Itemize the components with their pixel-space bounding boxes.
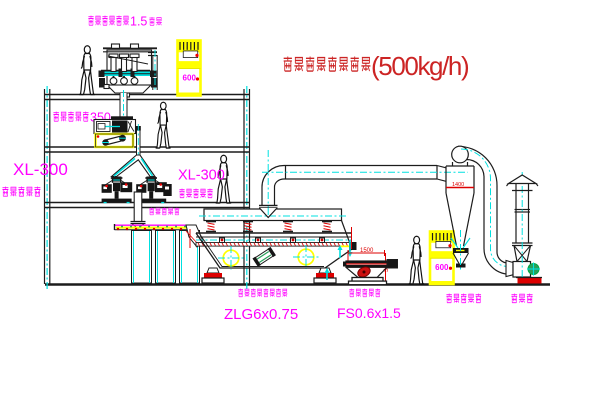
svg-text:1500: 1500 [360, 248, 374, 254]
svg-text:XL-300: XL-300 [178, 168, 225, 184]
svg-text:600: 600 [183, 74, 197, 83]
svg-text:ZLG6x0.75: ZLG6x0.75 [224, 306, 298, 323]
svg-text:1.5: 1.5 [130, 15, 147, 29]
svg-text:1400: 1400 [452, 182, 464, 188]
svg-text:(500kg/h): (500kg/h) [371, 51, 469, 81]
svg-text:600: 600 [435, 263, 449, 272]
svg-text:XL-300: XL-300 [13, 160, 68, 179]
svg-text:FS0.6x1.5: FS0.6x1.5 [337, 305, 401, 321]
